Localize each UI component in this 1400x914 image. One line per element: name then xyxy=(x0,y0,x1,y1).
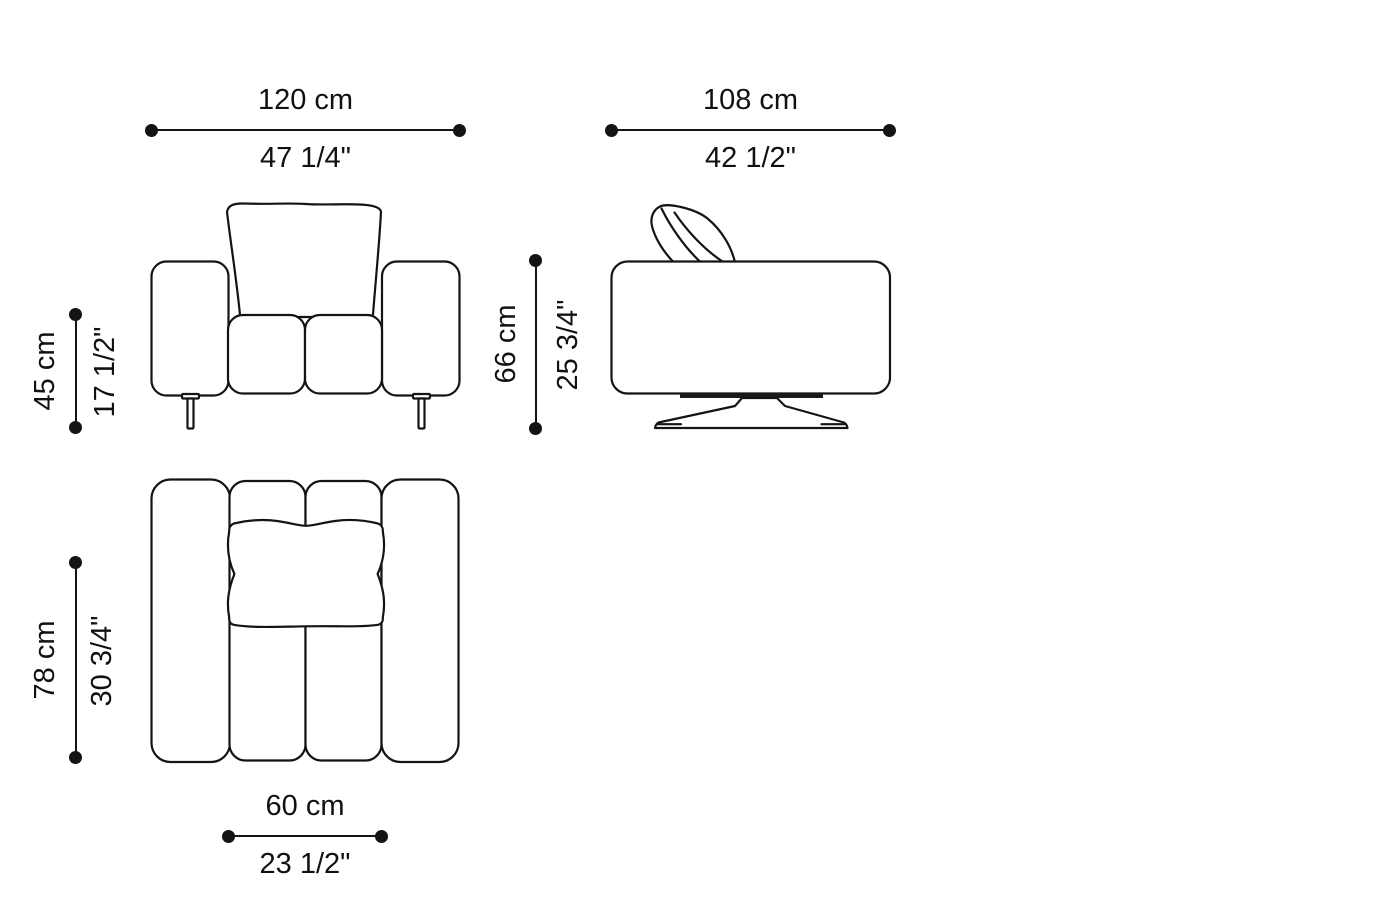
dim-endpoint-dot xyxy=(69,421,82,434)
dim-front-width-cm-label: 120 cm xyxy=(151,84,460,116)
dim-side-height-inch-label: 25 3/4" xyxy=(553,300,583,391)
dim-endpoint-dot xyxy=(453,124,466,137)
left-armrest xyxy=(152,262,229,396)
dim-endpoint-dot xyxy=(69,556,82,569)
dim-front-width: 120 cm 47 1/4" xyxy=(151,84,460,174)
dim-plan-depth-line xyxy=(75,562,77,757)
dim-front-width-line xyxy=(151,129,460,131)
plan-right-armrest xyxy=(382,480,459,763)
dim-endpoint-dot xyxy=(222,830,235,843)
dim-plan-depth-cm-label: 78 cm xyxy=(30,620,60,699)
dim-endpoint-dot xyxy=(145,124,158,137)
dim-endpoint-dot xyxy=(69,308,82,321)
dim-front-width-inch-label: 47 1/4" xyxy=(151,142,460,174)
front-leg-right xyxy=(413,394,430,429)
dim-front-height-line xyxy=(75,314,77,427)
dim-front-height-cm-label: 45 cm xyxy=(30,331,60,410)
plan-pillow xyxy=(228,520,384,627)
dim-side-width-inch-label: 42 1/2" xyxy=(611,142,890,174)
dim-endpoint-dot xyxy=(605,124,618,137)
dim-endpoint-dot xyxy=(69,751,82,764)
dim-plan-depth-inch-label: 30 3/4" xyxy=(87,616,117,707)
dim-front-height-inch-label: 17 1/2" xyxy=(90,327,120,418)
dim-seat-width-inch-label: 23 1/2" xyxy=(228,848,382,880)
dim-seat-width: 60 cm 23 1/2" xyxy=(228,790,382,880)
front-leg-left xyxy=(182,394,199,429)
dim-endpoint-dot xyxy=(883,124,896,137)
dim-side-height-line xyxy=(535,260,537,428)
dim-side-width-line xyxy=(611,129,890,131)
dim-side-height-cm-label: 66 cm xyxy=(491,305,521,384)
side-body xyxy=(612,262,891,394)
side-view-drawing xyxy=(612,205,891,428)
side-back-cushion xyxy=(651,205,735,263)
dim-endpoint-dot xyxy=(375,830,388,843)
front-view-drawing xyxy=(152,203,460,428)
dim-side-width: 108 cm 42 1/2" xyxy=(611,84,890,174)
dim-seat-width-cm-label: 60 cm xyxy=(228,790,382,822)
back-cushion xyxy=(227,203,381,317)
plan-left-armrest xyxy=(152,480,231,763)
dim-endpoint-dot xyxy=(529,422,542,435)
dim-endpoint-dot xyxy=(529,254,542,267)
seat-cushion-right xyxy=(305,315,382,394)
dim-side-width-cm-label: 108 cm xyxy=(611,84,890,116)
top-view-drawing xyxy=(152,480,459,763)
swivel-base-foot xyxy=(655,398,848,428)
dim-seat-width-line xyxy=(228,835,382,837)
armchair-dimension-diagram: 120 cm 47 1/4" 108 cm 42 1/2" 45 cm 17 1… xyxy=(0,0,1400,914)
right-armrest xyxy=(382,262,460,396)
seat-cushion-left xyxy=(228,315,305,394)
